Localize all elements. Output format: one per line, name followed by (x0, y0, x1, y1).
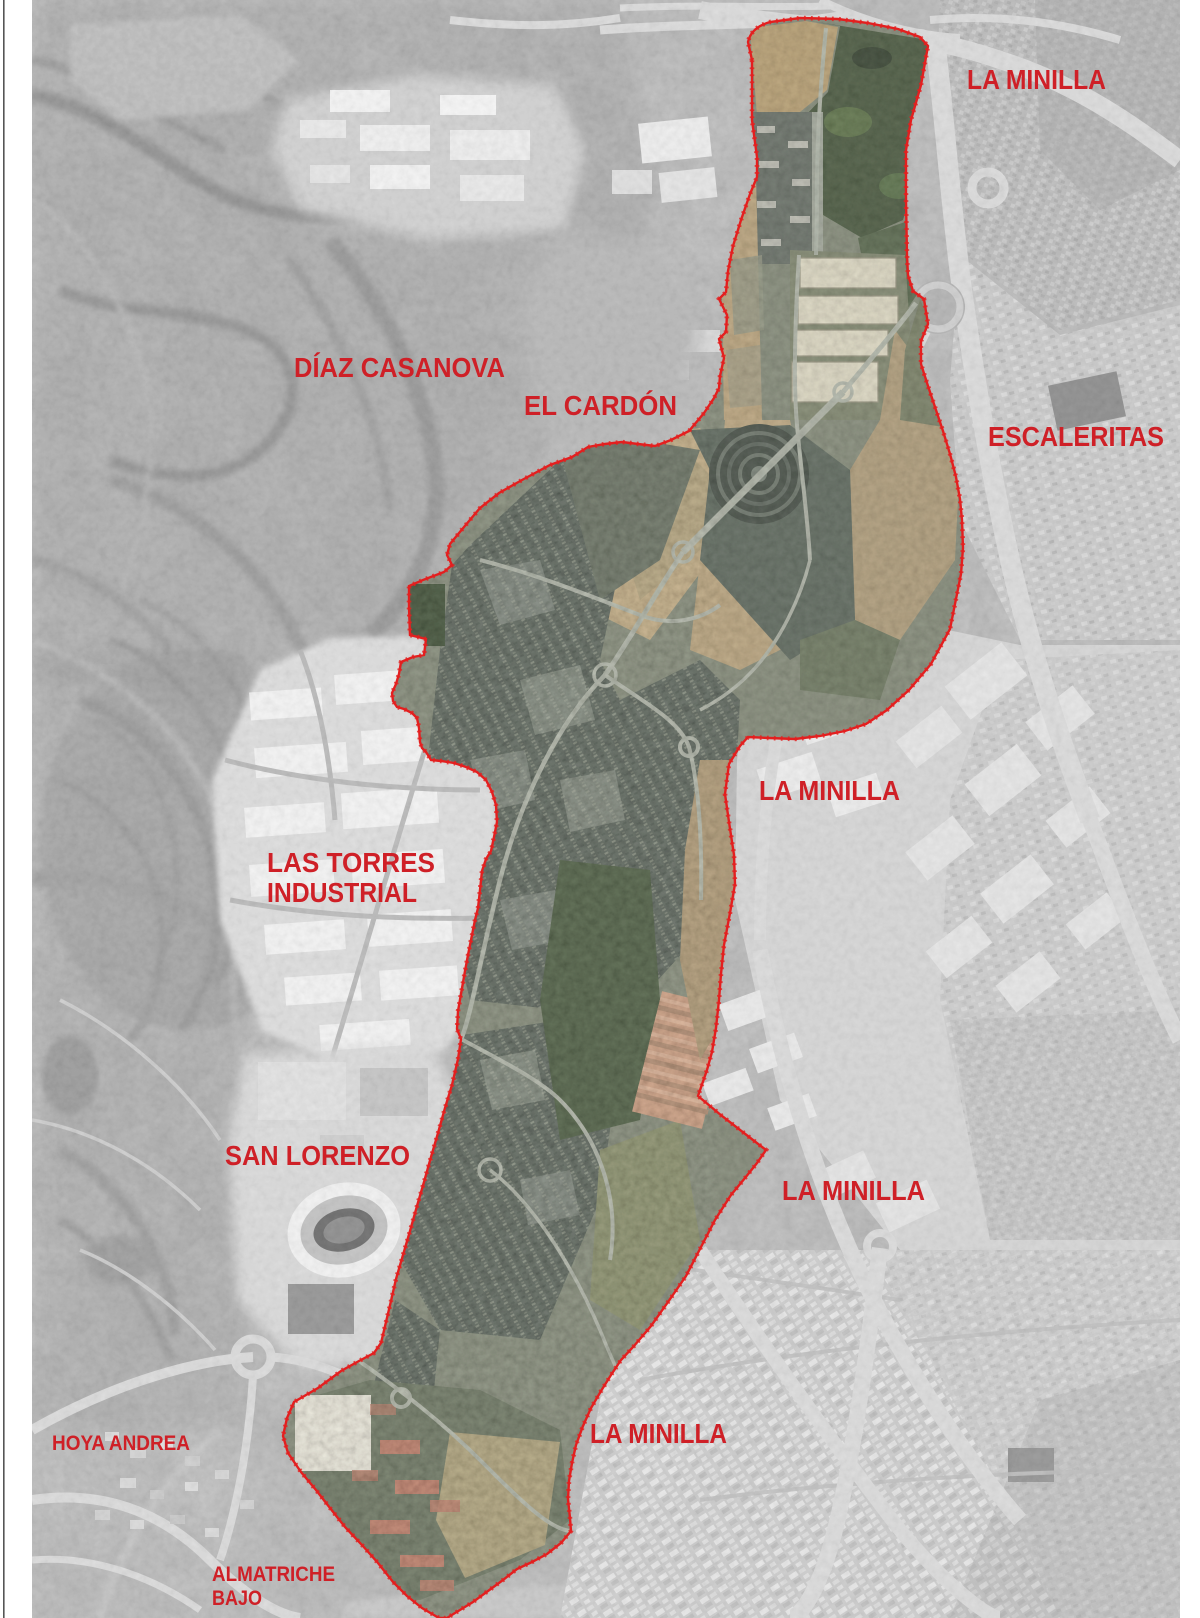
svg-text:SAN LORENZO: SAN LORENZO (225, 1140, 410, 1171)
svg-text:LA MINILLA: LA MINILLA (782, 1175, 925, 1206)
svg-text:BAJO: BAJO (212, 1587, 262, 1610)
svg-text:ALMATRICHE: ALMATRICHE (212, 1563, 335, 1586)
svg-text:DÍAZ CASANOVA: DÍAZ CASANOVA (294, 352, 505, 383)
svg-text:LA MINILLA: LA MINILLA (759, 775, 900, 806)
svg-text:EL CARDÓN: EL CARDÓN (524, 390, 677, 421)
svg-text:LAS TORRES: LAS TORRES (267, 847, 435, 878)
svg-text:LA MINILLA: LA MINILLA (590, 1418, 727, 1449)
svg-text:HOYA ANDREA: HOYA ANDREA (52, 1432, 190, 1455)
svg-text:INDUSTRIAL: INDUSTRIAL (267, 877, 417, 908)
svg-text:LA MINILLA: LA MINILLA (967, 64, 1106, 95)
svg-text:ESCALERITAS: ESCALERITAS (988, 421, 1164, 452)
